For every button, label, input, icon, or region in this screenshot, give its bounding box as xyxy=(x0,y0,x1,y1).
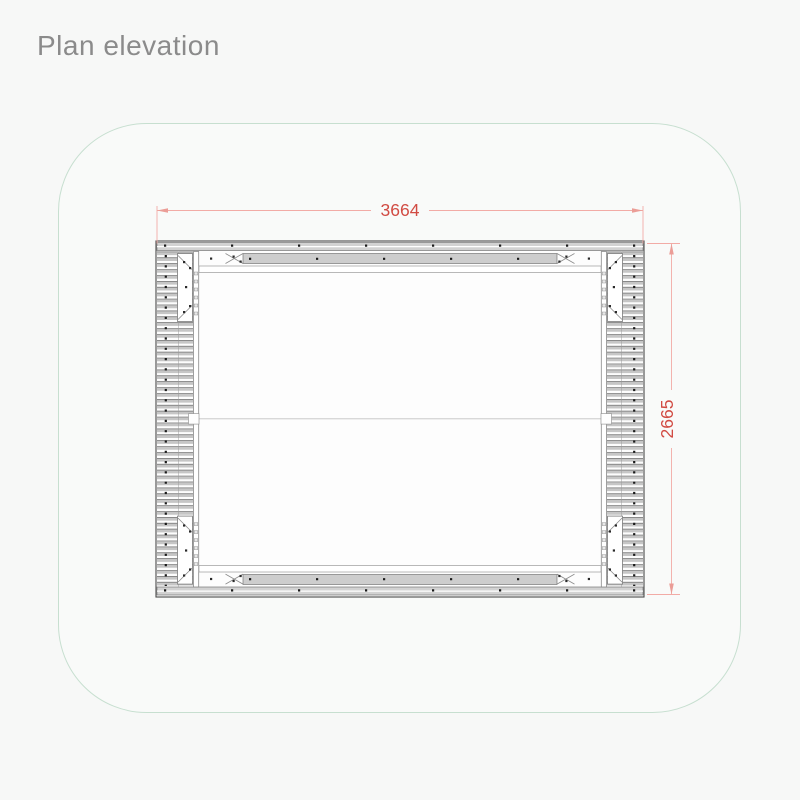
right-heatsink-strip xyxy=(622,252,635,587)
height-dimension-label: 2665 xyxy=(657,400,677,439)
left-mid-connector xyxy=(189,414,200,425)
left-heatsink-strip xyxy=(166,252,179,587)
bottom-inner-lip xyxy=(199,566,601,573)
top-inner-lip xyxy=(199,266,601,273)
top-rail xyxy=(157,243,643,251)
width-dimension-label: 3664 xyxy=(381,200,420,220)
top-inner-rail xyxy=(243,254,557,264)
right-mid-connector xyxy=(601,414,612,425)
frame-assembly xyxy=(156,241,644,597)
bottom-inner-rail xyxy=(243,575,557,585)
plan-drawing-canvas: 3664 2665 xyxy=(0,0,800,800)
bottom-rail xyxy=(157,587,643,595)
